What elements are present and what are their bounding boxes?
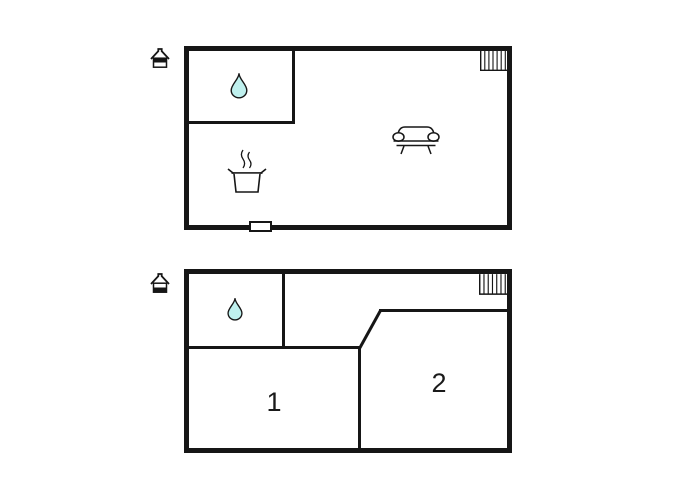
- room-1-label: 1: [254, 386, 294, 418]
- ground-floor-plan: 1 2: [184, 269, 512, 453]
- water-drop-icon: [227, 297, 243, 321]
- floor-plan-image: 1 2: [0, 0, 700, 500]
- room-2-label: 2: [419, 367, 459, 399]
- water-drop-icon: [230, 72, 248, 99]
- window-marker: [249, 221, 272, 232]
- stairs-icon: [480, 51, 507, 71]
- bathroom-right-wall: [282, 274, 285, 349]
- sofa-icon: [392, 119, 440, 157]
- cooking-pot-icon: [226, 148, 268, 196]
- house-ground-level-icon: [150, 273, 170, 294]
- house-upper-level-icon: [150, 48, 170, 69]
- room-divider-wall: [358, 346, 361, 448]
- room2-top-wall: [379, 309, 507, 312]
- upper-floor-plan: [184, 46, 512, 230]
- stairs-icon: [479, 274, 507, 295]
- room1-top-wall: [189, 346, 361, 349]
